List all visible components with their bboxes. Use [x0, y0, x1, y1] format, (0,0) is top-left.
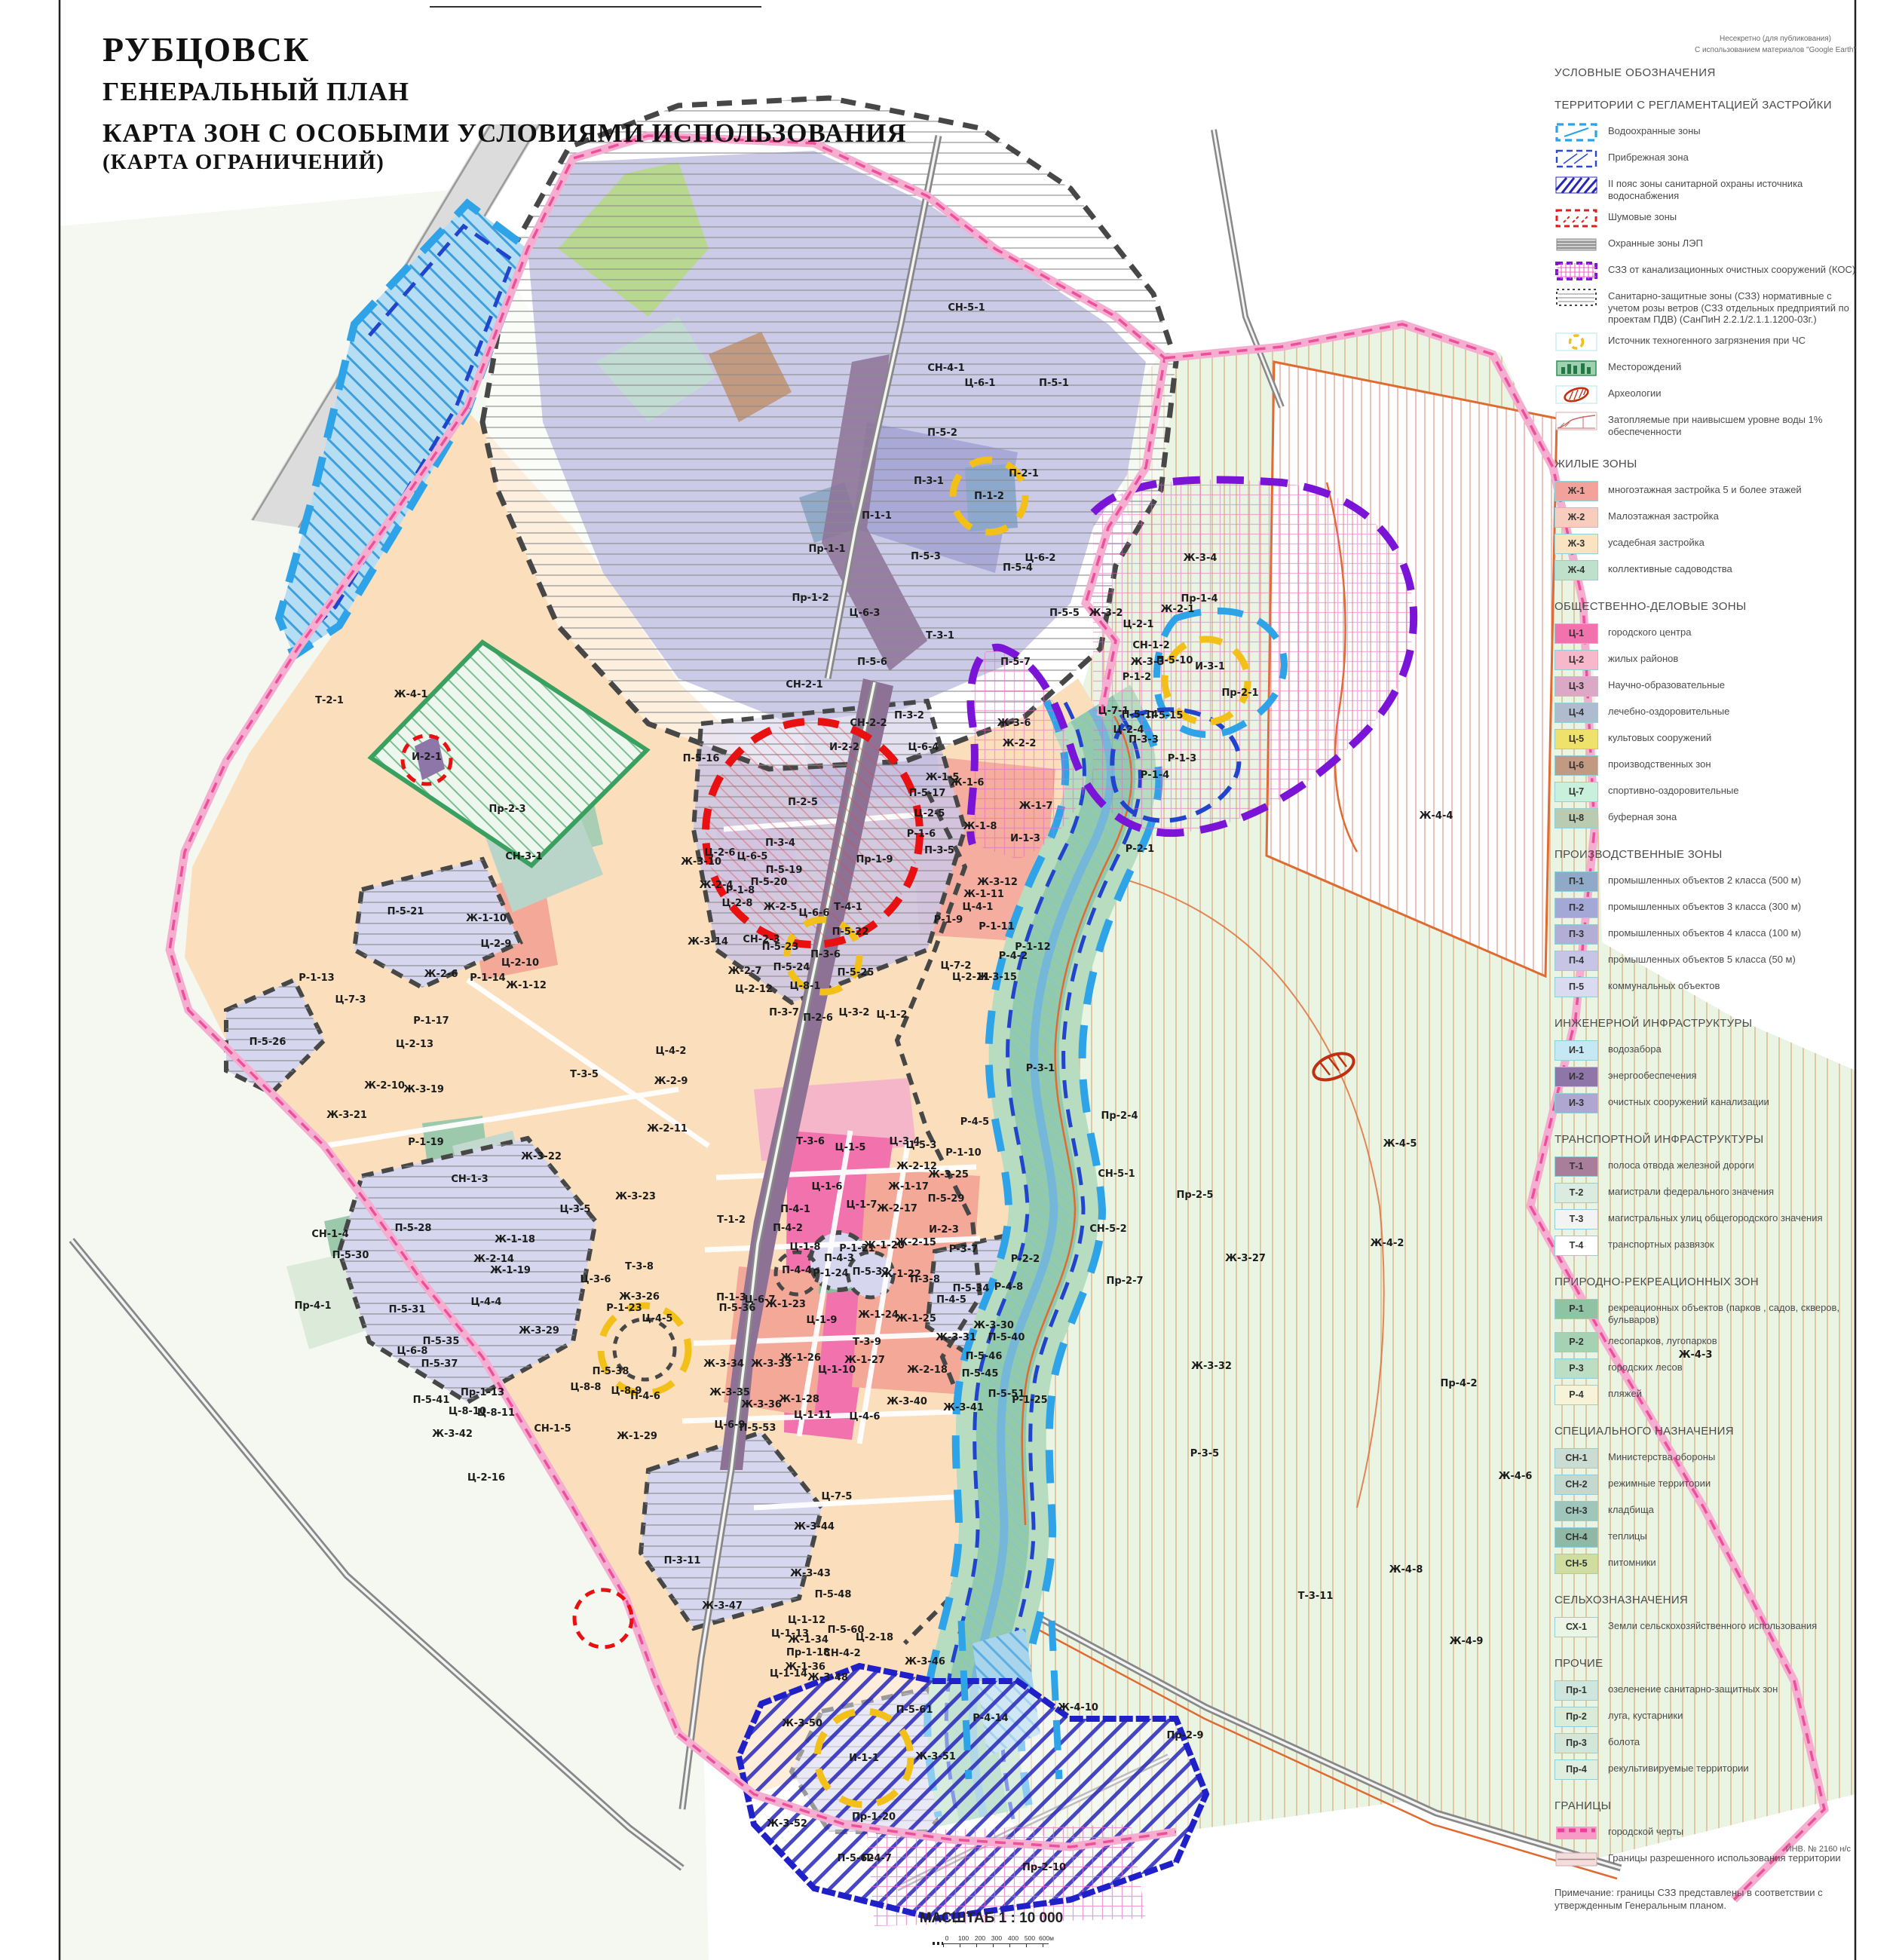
- zone-label: П-2-5: [788, 797, 818, 808]
- zone-code: Пр-4: [1566, 1765, 1587, 1775]
- legend-item-label: промышленных объектов 5 класса (50 м): [1608, 951, 1796, 966]
- zone-label: Ж-2-1: [1161, 604, 1195, 615]
- zone-swatch: Пр-1: [1554, 1680, 1598, 1701]
- legend-item-label: Малоэтажная застройка: [1608, 507, 1719, 522]
- pattern-swatch-icon: [1554, 149, 1598, 169]
- zone-label: П-5-29: [928, 1193, 965, 1205]
- legend-item-Пр-3: Пр-3болота: [1554, 1733, 1858, 1753]
- zone-label: Ж-3-26: [619, 1291, 660, 1303]
- zone-label: Пр-1-9: [856, 854, 893, 865]
- zone-label: Ж-3-34: [703, 1358, 744, 1370]
- zone-code: СН-4: [1565, 1533, 1587, 1542]
- zone-label: Пр-2-10: [1022, 1862, 1066, 1873]
- zone-label: И-1-3: [1010, 833, 1040, 844]
- legend-item-Ж-2: Ж-2Малоэтажная застройка: [1554, 507, 1858, 528]
- zone-label: Ж-1-10: [466, 913, 507, 924]
- zone-label: П-3-5: [924, 845, 954, 856]
- zone-label: Р-4-2: [999, 951, 1028, 962]
- zone-swatch: Пр-2: [1554, 1707, 1598, 1727]
- zone-label: П-4-4: [782, 1265, 812, 1276]
- zone-label: И-2-2: [829, 742, 859, 753]
- zone-label: Пр-2-5: [1176, 1190, 1213, 1201]
- legend-item-label: Месторождений: [1608, 358, 1681, 373]
- zone-label: Ж-3-25: [928, 1169, 969, 1181]
- zone-label: Ц-3-5: [560, 1204, 591, 1215]
- zone-label: Пр-1-4: [1181, 593, 1218, 605]
- zone-label: СН-1-4: [311, 1229, 348, 1240]
- legend-item-Ц-7: Ц-7спортивно-оздоровительные: [1554, 782, 1858, 802]
- zone-code: Пр-2: [1566, 1712, 1587, 1722]
- zone-label: П-3-1: [914, 476, 944, 487]
- legend-item-label: Источник техногенного загрязнения при ЧС: [1608, 332, 1806, 347]
- zone-label: Ж-1-23: [765, 1299, 806, 1310]
- zone-label: Ж-3-44: [794, 1521, 835, 1533]
- legend-item-Р-1: Р-1рекреационных объектов (парков , садо…: [1554, 1299, 1858, 1326]
- zone-code: Т-1: [1570, 1162, 1584, 1171]
- zone-label: П-5-25: [838, 967, 874, 978]
- legend-item-label: транспортных развязок: [1608, 1236, 1714, 1251]
- zone-label: Р-3-5: [1190, 1448, 1219, 1459]
- zone-label: Ц-5-3: [906, 1140, 937, 1151]
- zone-label: П-3-6: [810, 949, 841, 960]
- legend-item-label: городского центра: [1608, 623, 1691, 639]
- zone-label: П-5-19: [766, 865, 803, 876]
- legend-item-label: II пояс зоны санитарной охраны источника…: [1608, 175, 1858, 202]
- zone-label: Ж-1-18: [495, 1234, 535, 1245]
- legend-item: Шумовые зоны: [1554, 208, 1858, 228]
- zone-label: СН-5-1: [948, 302, 985, 314]
- zone-swatch: СН-3: [1554, 1501, 1598, 1521]
- legend-item-label: очистных сооружений канализации: [1608, 1093, 1769, 1108]
- zone-label: Пр-4-2: [1440, 1378, 1477, 1389]
- legend-item-СН-5: СН-5питомники: [1554, 1554, 1858, 1574]
- scale-label: МАСШТАБ 1 : 10 000: [908, 1910, 1074, 1927]
- zone-label: Р-1-3: [1168, 753, 1196, 764]
- legend-section-header: ПРОЧИЕ: [1554, 1657, 1858, 1670]
- zone-swatch: СН-4: [1554, 1527, 1598, 1548]
- zone-swatch: Ж-1: [1554, 481, 1598, 501]
- zone-swatch: Ц-6: [1554, 755, 1598, 776]
- legend-section-header: ПРОИЗВОДСТВЕННЫЕ ЗОНЫ: [1554, 848, 1858, 861]
- zone-code: П-2: [1569, 903, 1584, 913]
- zone-swatch: Ц-8: [1554, 808, 1598, 828]
- legend-item-label: полоса отвода железной дороги: [1608, 1156, 1754, 1171]
- zone-label: П-5-15: [1147, 710, 1184, 721]
- zone-code: Ц-4: [1569, 708, 1584, 718]
- zone-label: Т-3-11: [1298, 1591, 1334, 1602]
- zone-label: Ц-2-1: [1123, 619, 1154, 630]
- legend-item-Ц-2: Ц-2жилых районов: [1554, 650, 1858, 670]
- zone-label: Р-3-7: [949, 1244, 978, 1255]
- zone-label: Ц-8-11: [477, 1407, 515, 1419]
- zone-label: Ж-3-19: [403, 1084, 444, 1095]
- zone-swatch: И-2: [1554, 1067, 1598, 1087]
- zone-label: Ж-1-19: [490, 1265, 531, 1276]
- zone-label: Ж-4-8: [1389, 1564, 1423, 1576]
- zone-label: Ц-1-2: [877, 1009, 908, 1021]
- zone-label: Ц-2-8: [722, 898, 753, 909]
- zone-label: Ж-4-10: [1058, 1702, 1098, 1713]
- zone-label: Р-1-4: [1141, 770, 1169, 781]
- zone-label: П-5-16: [683, 753, 720, 764]
- zone-label: Ж-3-21: [326, 1110, 367, 1121]
- zone-label: П-2-6: [803, 1012, 833, 1024]
- pattern-swatch-icon: [1554, 287, 1598, 308]
- legend-item-label: промышленных объектов 3 класса (300 м): [1608, 898, 1801, 913]
- legend-item-label: усадебная застройка: [1608, 534, 1705, 549]
- zone-label: Пр-1-1: [808, 544, 845, 555]
- zone-label: Ж-4-1: [394, 689, 428, 700]
- legend-item-label: болота: [1608, 1733, 1640, 1748]
- pattern-swatch-icon: [1554, 411, 1598, 431]
- legend-item-label: многоэтажная застройка 5 и более этажей: [1608, 481, 1802, 496]
- legend-note: Примечание: границы СЗЗ представлены в с…: [1554, 1886, 1858, 1913]
- zone-label: П-3-11: [664, 1555, 701, 1566]
- zone-label: П-5-38: [593, 1366, 629, 1377]
- zone-code: И-1: [1569, 1046, 1584, 1055]
- zone-swatch: Ц-2: [1554, 650, 1598, 670]
- zone-label: Ж-4-6: [1499, 1471, 1533, 1482]
- legend-item: Затопляемые при наивысшем уровне воды 1%…: [1554, 411, 1858, 438]
- zone-swatch: П-2: [1554, 898, 1598, 918]
- zone-code: Пр-1: [1566, 1686, 1587, 1695]
- zone-label: П-4-6: [630, 1391, 660, 1402]
- zone-label: Ц-8-8: [571, 1382, 602, 1393]
- zone-label: Р-4-5: [960, 1116, 989, 1128]
- legend-item-label: пляжей: [1608, 1385, 1642, 1400]
- legend-item-label: режимные территории: [1608, 1475, 1711, 1490]
- zone-label: Пр-1-2: [792, 593, 829, 604]
- zone-label: Ж-2-2: [1003, 738, 1037, 749]
- legend-item-label: теплицы: [1608, 1527, 1647, 1542]
- legend-item-label: СЗЗ от канализационных очистных сооружен…: [1608, 261, 1855, 276]
- zone-label: Ж-1-28: [779, 1394, 819, 1405]
- zone-label: Ж-2-17: [877, 1203, 917, 1214]
- zone-label: Ж-2-7: [728, 966, 762, 977]
- zone-label: СН-5-1: [1098, 1168, 1135, 1180]
- legend-section-header: ИНЖЕНЕРНОЙ ИНФРАСТРУКТУРЫ: [1554, 1017, 1858, 1030]
- zone-label: Ж-1-17: [888, 1181, 929, 1193]
- zone-label: П-5-1: [1039, 378, 1069, 389]
- legend-item-label: производственных зон: [1608, 755, 1711, 770]
- legend-section-5: ТРАНСПОРТНОЙ ИНФРАСТРУКТУРЫТ-1полоса отв…: [1554, 1133, 1858, 1256]
- legend-section-header: ПРИРОДНО-РЕКРЕАЦИОННЫХ ЗОН: [1554, 1276, 1858, 1288]
- zone-label: Ц-1-9: [807, 1315, 838, 1326]
- zone-label: П-5-23: [762, 942, 799, 953]
- zone-label: Пр-2-7: [1106, 1276, 1143, 1287]
- zone-label: Ц-1-5: [835, 1142, 866, 1153]
- inventory-number: ИНВ. № 2160 н/с: [1711, 1845, 1851, 1854]
- legend-title: УСЛОВНЫЕ ОБОЗНАЧЕНИЯ: [1554, 66, 1858, 79]
- zone-label: Пр-1-20: [852, 1811, 896, 1823]
- zone-label: Ж-2-9: [654, 1076, 688, 1087]
- legend-item-Ц-1: Ц-1городского центра: [1554, 623, 1858, 644]
- zone-label: Ц-7-2: [941, 960, 972, 972]
- zone-label: Ж-2-4: [700, 880, 734, 891]
- zone-code: Ц-3: [1569, 681, 1584, 691]
- zone-label: Ц-4-1: [963, 902, 994, 913]
- zone-label: СН-4-2: [823, 1648, 860, 1659]
- zone-label: Ж-4-9: [1450, 1636, 1484, 1647]
- legend-item-label: Земли сельскохозяйственного использовани…: [1608, 1617, 1817, 1632]
- legend-section-6: ПРИРОДНО-РЕКРЕАЦИОННЫХ ЗОНР-1рекреационн…: [1554, 1276, 1858, 1405]
- zone-label: П-5-53: [740, 1423, 776, 1434]
- scale-tick: 400: [1005, 1934, 1022, 1942]
- legend-item-label: Водоохранные зоны: [1608, 122, 1701, 137]
- legend-item-Ж-1: Ж-1многоэтажная застройка 5 и более этаж…: [1554, 481, 1858, 501]
- legend-item-label: культовых сооружений: [1608, 729, 1711, 744]
- zone-label: Ц-3-2: [839, 1007, 870, 1018]
- zone-label: Ц-2-9: [481, 939, 512, 950]
- zone-label: П-4-5: [936, 1294, 966, 1306]
- zone-label: Ж-1-12: [506, 980, 547, 991]
- zone-swatch: Ц-4: [1554, 703, 1598, 723]
- zone-label: Т-3-1: [926, 630, 954, 642]
- zone-label: Р-1-13: [299, 972, 334, 984]
- zone-label: Т-1-2: [717, 1214, 746, 1226]
- zone-label: Пр-4-1: [294, 1300, 331, 1312]
- zone-label: И-1-1: [849, 1753, 879, 1764]
- zone-label: Ж-1-25: [896, 1313, 936, 1325]
- legend-section-header: ТРАНСПОРТНОЙ ИНФРАСТРУКТУРЫ: [1554, 1133, 1858, 1146]
- zone-label: Ж-3-29: [519, 1325, 559, 1337]
- zone-label: Ж-3-46: [905, 1656, 945, 1668]
- legend-section-9: ПРОЧИЕПр-1озеленение санитарно-защитных …: [1554, 1657, 1858, 1780]
- scale-tick-mark: [960, 1943, 960, 1947]
- zone-code: Р-3: [1569, 1364, 1583, 1374]
- zone-label: П-5-46: [966, 1351, 1003, 1362]
- zone-label: Ж-4-4: [1420, 810, 1453, 822]
- zone-label: Р-1-6: [907, 828, 936, 840]
- zone-label: СН-2-2: [850, 718, 887, 729]
- zone-label: П-5-34: [953, 1283, 990, 1294]
- zone-code: Ц-1: [1569, 629, 1584, 639]
- zone-label: Р-1-14: [470, 972, 505, 984]
- zone-swatch: СХ-1: [1554, 1617, 1598, 1637]
- zone-label: Ж-3-12: [977, 877, 1018, 888]
- map-sheet: СН-5-1СН-4-1Ц-6-1П-5-1П-5-2П-3-1П-2-1П-1…: [0, 0, 1896, 1960]
- legend-item-Пр-2: Пр-2луга, кустарники: [1554, 1707, 1858, 1727]
- zone-label: П-3-3: [1129, 734, 1159, 746]
- zone-code: Р-2: [1569, 1337, 1583, 1347]
- zone-label: Ц-6-6: [799, 908, 830, 919]
- zone-label: Р-1-19: [408, 1137, 443, 1148]
- scale-tick: 200: [972, 1934, 988, 1942]
- legend-item: Археологии: [1554, 384, 1858, 405]
- zone-code: Пр-3: [1566, 1738, 1587, 1748]
- legend-item-Р-3: Р-3городских лесов: [1554, 1358, 1858, 1379]
- scale-tick-mark: [943, 1943, 944, 1947]
- zone-label: П-4-7: [862, 1853, 892, 1864]
- legend-item-П-4: П-4промышленных объектов 5 класса (50 м): [1554, 951, 1858, 971]
- zone-code: Ц-6: [1569, 761, 1584, 770]
- zone-label: И-2-1: [412, 752, 442, 763]
- zone-label: Ж-2-5: [764, 902, 798, 913]
- zone-label: П-5-61: [896, 1704, 933, 1716]
- legend-item-label: промышленных объектов 2 класса (500 м): [1608, 871, 1801, 887]
- scale-tick-mark: [1026, 1943, 1027, 1947]
- legend-item-label: промышленных объектов 4 класса (100 м): [1608, 924, 1801, 939]
- zone-label: Ц-2-12: [735, 984, 773, 995]
- zone-label: Ж-2-14: [473, 1254, 514, 1265]
- legend-section-header: ТЕРРИТОРИИ С РЕГЛАМЕНТАЦИЕЙ ЗАСТРОЙКИ: [1554, 99, 1858, 112]
- zone-swatch: И-1: [1554, 1040, 1598, 1061]
- legend: УСЛОВНЫЕ ОБОЗНАЧЕНИЯ ТЕРРИТОРИИ С РЕГЛАМ…: [1554, 66, 1858, 1913]
- zone-label: Ж-2-18: [907, 1364, 948, 1376]
- legend-item-label: питомники: [1608, 1554, 1656, 1569]
- legend-section-header: СЕЛЬХОЗНАЗНАЧЕНИЯ: [1554, 1594, 1858, 1606]
- zone-label: Ж-3-47: [702, 1600, 743, 1612]
- zone-code: Т-4: [1570, 1241, 1584, 1251]
- scale-tick-labels: 0100200300400500600м: [939, 1934, 1055, 1942]
- zone-swatch: Ц-1: [1554, 623, 1598, 644]
- legend-item-label: магистральных улиц общегородского значен…: [1608, 1209, 1823, 1224]
- zone-label: Ж-3-6: [997, 718, 1031, 729]
- zone-label: Ц-2-10: [501, 957, 539, 969]
- zone-label: Ц-7-5: [822, 1491, 853, 1502]
- legend-sections: ТЕРРИТОРИИ С РЕГЛАМЕНТАЦИЕЙ ЗАСТРОЙКИВод…: [1554, 99, 1858, 1870]
- legend-section-header: ЖИЛЫЕ ЗОНЫ: [1554, 458, 1858, 470]
- zone-label: П-5-41: [413, 1395, 450, 1406]
- zone-label: СН-1-3: [451, 1174, 488, 1185]
- zone-label: Ц-6-3: [850, 608, 881, 619]
- zone-label: Ж-2-11: [647, 1123, 688, 1135]
- zone-label: Ж-1-24: [858, 1309, 899, 1321]
- legend-item: Источник техногенного загрязнения при ЧС: [1554, 332, 1858, 352]
- zone-label: Ж-3-50: [782, 1718, 822, 1729]
- zone-label: Пр-2-9: [1166, 1730, 1203, 1741]
- zone-label: Ж-1-11: [963, 889, 1004, 900]
- scale-tick: 300: [988, 1934, 1005, 1942]
- zone-label: Ц-2-18: [856, 1632, 893, 1643]
- zone-code: Ц-7: [1569, 787, 1584, 797]
- legend-section-8: СЕЛЬХОЗНАЗНАЧЕНИЯСХ-1Земли сельскохозяйс…: [1554, 1594, 1858, 1637]
- zone-swatch: П-1: [1554, 871, 1598, 892]
- legend-item-Т-3: Т-3магистральных улиц общегородского зна…: [1554, 1209, 1858, 1230]
- zone-swatch: Т-4: [1554, 1236, 1598, 1256]
- zone-label: Р-1-17: [413, 1015, 449, 1027]
- legend-item: Прибрежная зона: [1554, 149, 1858, 169]
- zone-swatch: Ц-3: [1554, 676, 1598, 697]
- legend-item-label: рекреационных объектов (парков , садов, …: [1608, 1299, 1858, 1326]
- zone-label: Пр-2-4: [1101, 1110, 1138, 1122]
- zone-label: Ж-3-33: [751, 1358, 792, 1370]
- legend-section-header: ОБЩЕСТВЕННО-ДЕЛОВЫЕ ЗОНЫ: [1554, 600, 1858, 613]
- pattern-swatch-icon: [1554, 208, 1598, 228]
- legend-item: Месторождений: [1554, 358, 1858, 378]
- zone-label: Р-2-1: [1126, 844, 1154, 855]
- legend-item-Р-2: Р-2лесопарков, лугопарков: [1554, 1332, 1858, 1352]
- zone-label: П-5-7: [1000, 657, 1031, 668]
- legend-item-label: коллективные садоводства: [1608, 560, 1732, 575]
- zone-label: Р-4-8: [994, 1282, 1023, 1293]
- zone-label: П-5-26: [250, 1037, 286, 1048]
- zone-swatch: Пр-3: [1554, 1733, 1598, 1753]
- zone-code: СН-1: [1565, 1453, 1587, 1463]
- legend-item-label: энергообеспечения: [1608, 1067, 1697, 1082]
- zone-label: П-5-31: [389, 1304, 426, 1315]
- zone-label: П-5-28: [395, 1223, 432, 1234]
- zone-code: П-4: [1569, 956, 1584, 966]
- zone-label: Ж-3-41: [943, 1402, 984, 1413]
- scale-tick-mark: [1043, 1943, 1043, 1947]
- legend-item: городской черты: [1554, 1823, 1858, 1843]
- zone-label: Пр-1-13: [461, 1387, 504, 1398]
- zone-code: Р-4: [1569, 1390, 1583, 1400]
- zone-label: П-5-2: [927, 427, 957, 439]
- legend-item-label: водозабора: [1608, 1040, 1662, 1055]
- legend-item-Т-2: Т-2магистрали федерального значения: [1554, 1183, 1858, 1203]
- pattern-swatch-icon: [1554, 332, 1598, 352]
- legend-item-Пр-4: Пр-4рекультивируемые территории: [1554, 1759, 1858, 1780]
- zone-label: Ж-3-36: [741, 1399, 782, 1410]
- zone-swatch: Ж-2: [1554, 507, 1598, 528]
- zone-label: П-5-4: [1003, 562, 1033, 574]
- zone-label: П-4-1: [780, 1204, 810, 1215]
- zone-code: Т-2: [1570, 1188, 1584, 1198]
- zone-label: Ц-1-14: [770, 1668, 807, 1680]
- zone-label: П-5-48: [815, 1589, 852, 1600]
- legend-item-И-3: И-3очистных сооружений канализации: [1554, 1093, 1858, 1113]
- legend-item-П-3: П-3промышленных объектов 4 класса (100 м…: [1554, 924, 1858, 945]
- zone-label: Ж-2-10: [364, 1080, 405, 1092]
- map-name: КАРТА ЗОН С ОСОБЫМИ УСЛОВИЯМИ ИСПОЛЬЗОВА…: [103, 120, 907, 148]
- legend-item-И-1: И-1водозабора: [1554, 1040, 1858, 1061]
- zone-label: Р-1-24: [813, 1268, 848, 1279]
- zone-label: СН-5-2: [1089, 1223, 1126, 1235]
- city-name: РУБЦОВСК: [103, 32, 907, 68]
- zone-label: Пр-2-1: [1221, 688, 1258, 699]
- zone-code: П-5: [1569, 982, 1584, 992]
- zone-label: Т-3-6: [796, 1136, 825, 1147]
- legend-item-Ц-6: Ц-6производственных зон: [1554, 755, 1858, 776]
- zone-label: Ц-1-6: [812, 1181, 843, 1193]
- zone-label: Р-1-11: [979, 921, 1014, 933]
- zone-swatch: СН-1: [1554, 1448, 1598, 1468]
- zone-label: Ж-3-48: [807, 1672, 848, 1683]
- zone-label: П-5-22: [832, 926, 869, 938]
- zone-code: Ц-8: [1569, 813, 1584, 823]
- zone-code: Ц-5: [1569, 734, 1584, 744]
- scale-tick-mark: [1009, 1943, 1010, 1947]
- legend-item: II пояс зоны санитарной охраны источника…: [1554, 175, 1858, 202]
- legend-item-СН-4: СН-4теплицы: [1554, 1527, 1858, 1548]
- legend-section-header: ГРАНИЦЫ: [1554, 1799, 1858, 1812]
- zone-code: П-3: [1569, 929, 1584, 939]
- plan-type: ГЕНЕРАЛЬНЫЙ ПЛАН: [103, 78, 907, 106]
- zone-swatch: Пр-4: [1554, 1759, 1598, 1780]
- zone-label: Ж-1-8: [963, 821, 997, 832]
- zone-label: П-1-1: [862, 510, 892, 522]
- zone-code: Р-1: [1569, 1304, 1583, 1314]
- legend-item-Ц-3: Ц-3Научно-образовательные: [1554, 676, 1858, 697]
- legend-item-СН-3: СН-3кладбища: [1554, 1501, 1858, 1521]
- legend-item-label: Шумовые зоны: [1608, 208, 1677, 223]
- zone-label: Т-3-8: [625, 1261, 654, 1272]
- zone-label: Ж-1-34: [788, 1634, 829, 1646]
- zone-label: Ц-8-1: [790, 981, 821, 992]
- legend-section-10: ГРАНИЦЫгородской чертыГраницы разрешенно…: [1554, 1799, 1858, 1870]
- zone-label: П-5-36: [719, 1303, 756, 1314]
- zone-label: Ц-2-5: [914, 808, 945, 819]
- legend-item: Водоохранные зоны: [1554, 122, 1858, 142]
- zone-label: Р-4-14: [973, 1713, 1008, 1724]
- zone-label: П-5-20: [751, 877, 788, 888]
- zone-label: П-3-2: [894, 710, 924, 721]
- legend-item-label: буферная зона: [1608, 808, 1677, 823]
- zone-swatch: Т-1: [1554, 1156, 1598, 1177]
- pattern-swatch-icon: [1554, 1849, 1598, 1870]
